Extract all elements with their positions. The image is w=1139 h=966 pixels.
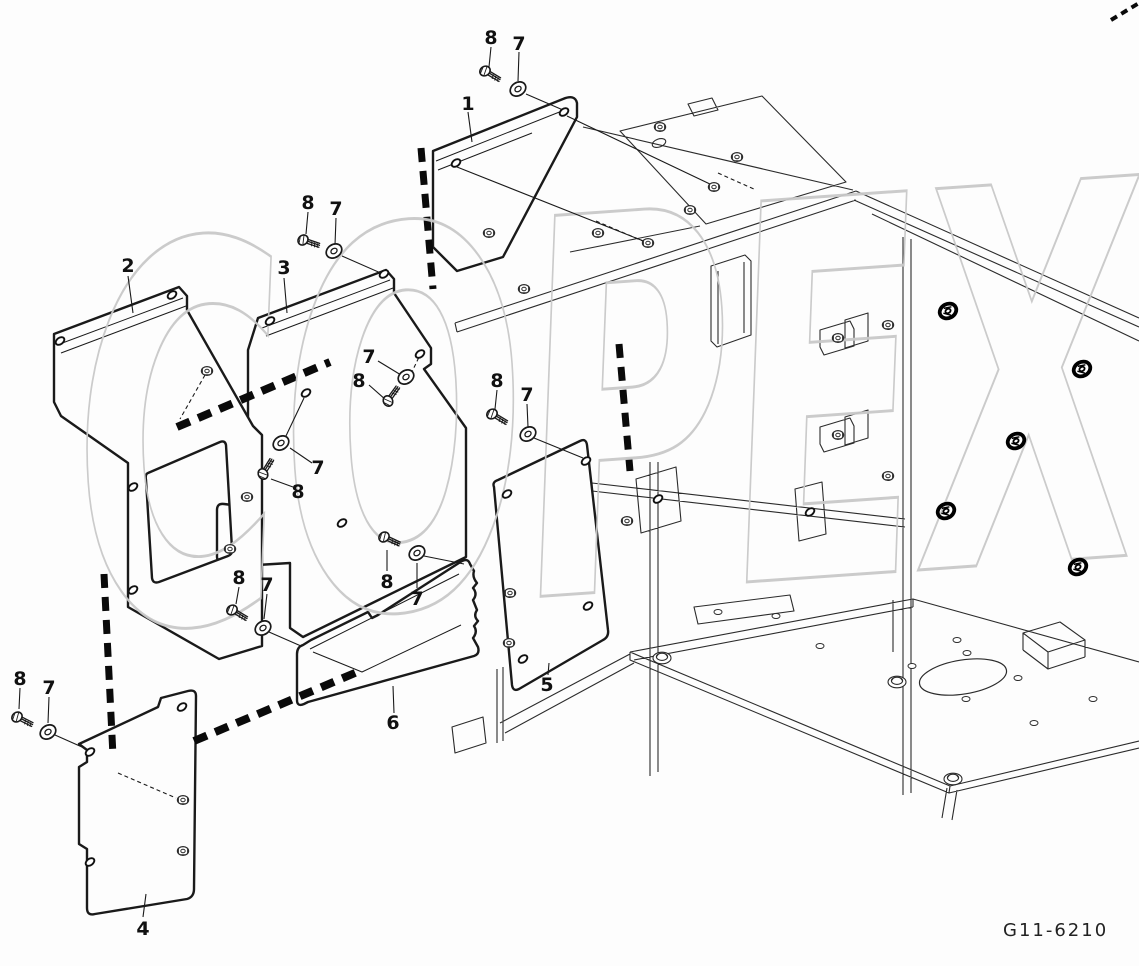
callout-washer-7: 7 (410, 588, 423, 610)
callout-bolt-8: 8 (484, 27, 497, 49)
parts-diagram: COPEX (0, 0, 1139, 966)
callout-washer-7: 7 (329, 198, 342, 220)
callout-bolt-8: 8 (232, 567, 245, 589)
callout-bolt-8: 8 (490, 370, 503, 392)
bolt-icon (478, 64, 501, 81)
bolt-icon (9, 709, 33, 728)
callout-washer-7: 7 (362, 346, 375, 368)
washer-icon (507, 79, 528, 99)
callout-part-4: 4 (136, 918, 149, 940)
callout-part-6: 6 (386, 712, 399, 734)
callout-bolt-8: 8 (380, 571, 393, 593)
callout-bolt-8: 8 (291, 481, 304, 503)
washer-icon (37, 722, 58, 742)
callout-washer-7: 7 (520, 384, 533, 406)
callout-bolt-8: 8 (301, 192, 314, 214)
callout-washer-7: 7 (260, 574, 273, 596)
chain-line-corner-mark (1111, 3, 1139, 20)
callout-part-3: 3 (277, 257, 290, 279)
callout-part-2: 2 (121, 255, 134, 277)
callout-part-1: 1 (461, 93, 474, 115)
callout-washer-7: 7 (42, 677, 55, 699)
callout-washer-7: 7 (311, 457, 324, 479)
callout-bolt-8: 8 (352, 370, 365, 392)
callout-part-5: 5 (540, 674, 553, 696)
watermark-text: COPEX (54, 73, 1139, 752)
drawing-number: G11-6210 (1003, 920, 1108, 941)
parts-diagram-page: COPEX (0, 0, 1139, 966)
callout-bolt-8: 8 (13, 668, 26, 690)
callout-washer-7: 7 (512, 33, 525, 55)
